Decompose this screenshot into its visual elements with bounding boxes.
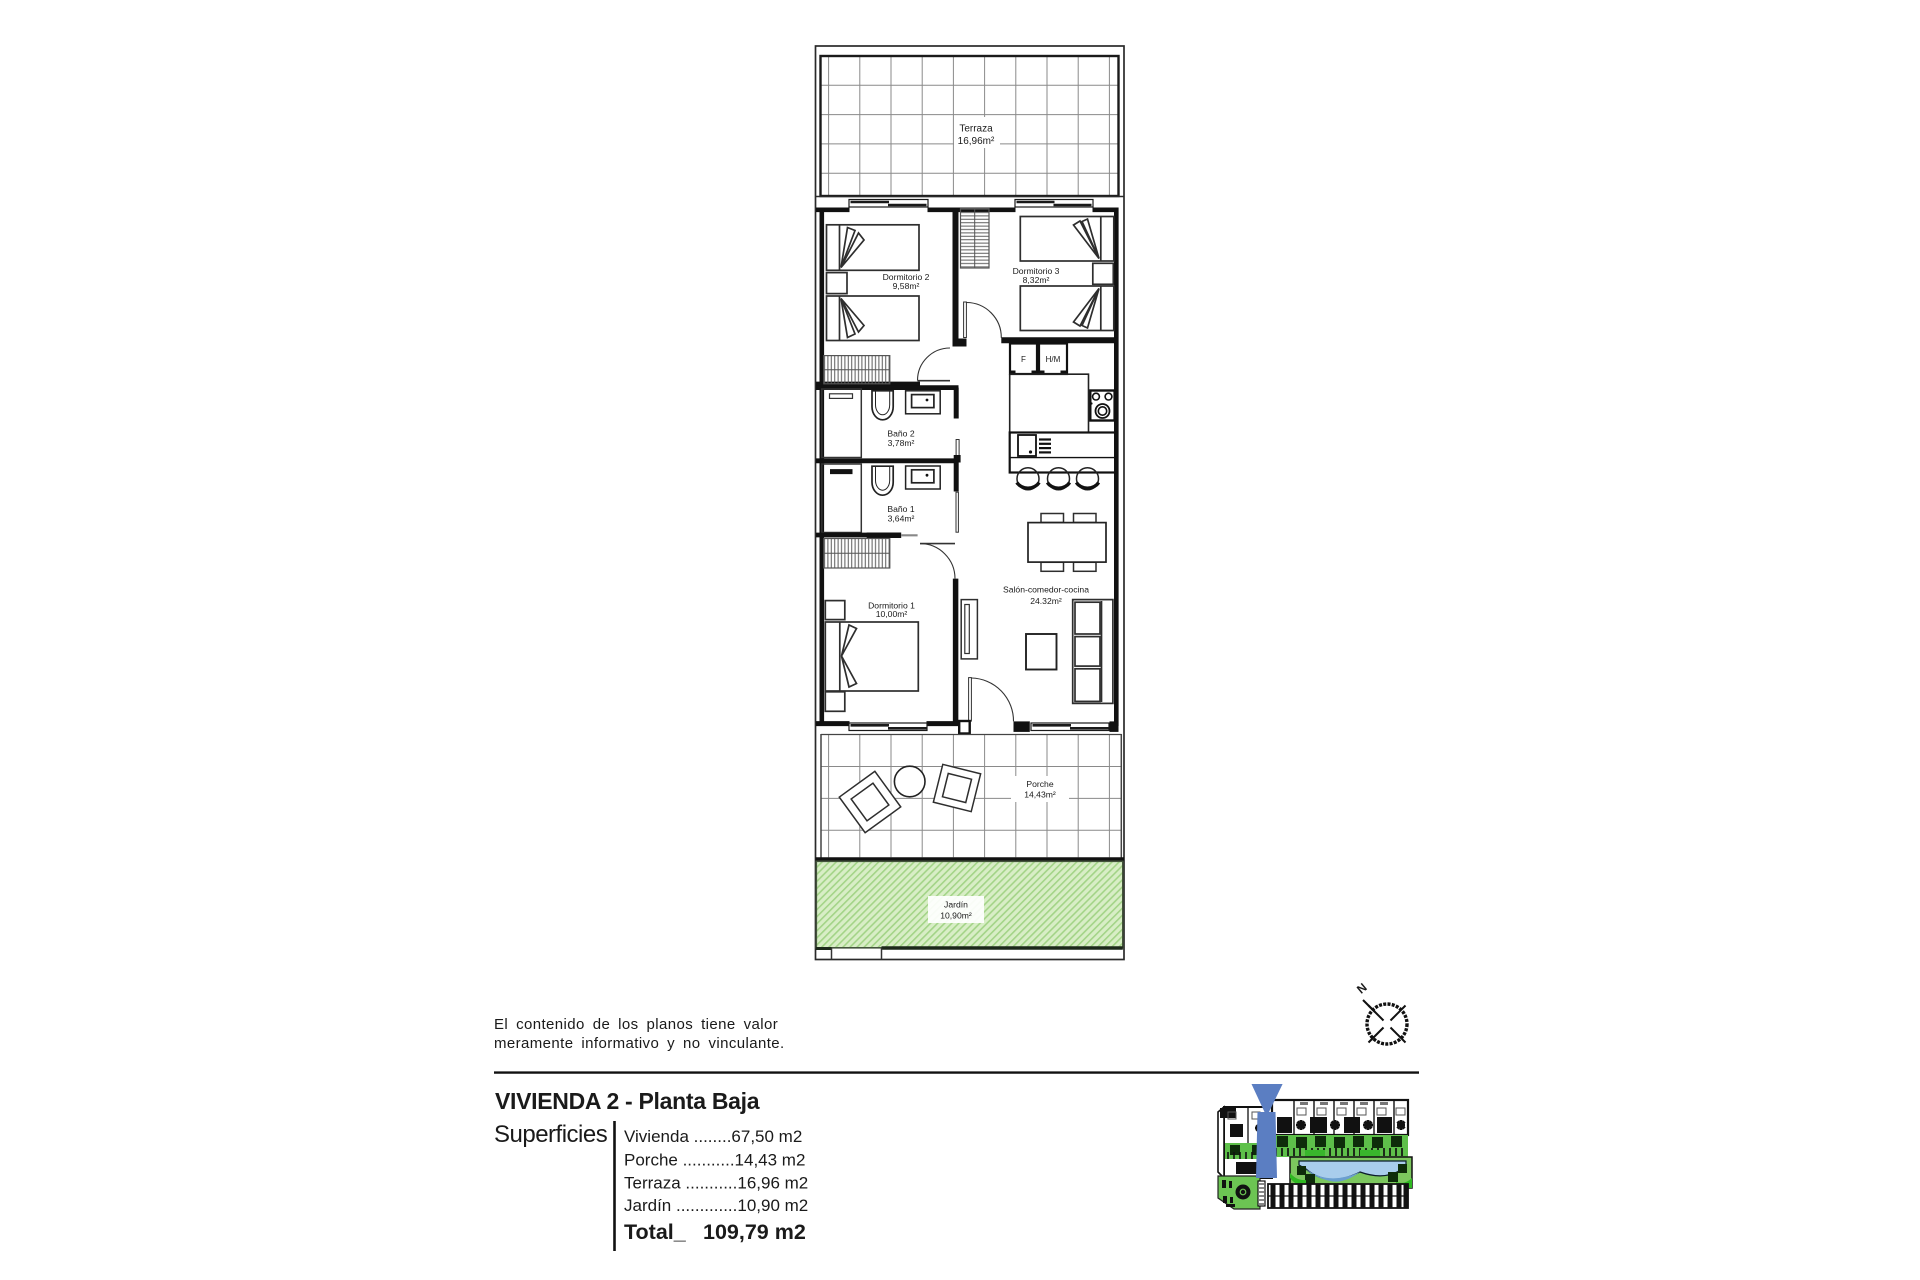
svg-text:3,64m²: 3,64m² [888, 513, 915, 523]
svg-text:10,90m²: 10,90m² [940, 911, 972, 921]
svg-text:meramente informativo y no vin: meramente informativo y no vinculante. [494, 1035, 785, 1052]
svg-text:Vivienda ........67,50 m2: Vivienda ........67,50 m2 [624, 1127, 802, 1146]
svg-text:8,32m²: 8,32m² [1023, 275, 1050, 285]
svg-text:Terraza ...........16,96 m2: Terraza ...........16,96 m2 [624, 1174, 808, 1193]
svg-text:El contenido de los planos tie: El contenido de los planos tiene valor [494, 1016, 778, 1033]
svg-text:3,78m²: 3,78m² [888, 438, 915, 448]
svg-text:24.32m²: 24.32m² [1030, 596, 1062, 606]
svg-text:Jardín: Jardín [944, 900, 968, 910]
svg-text:Terraza: Terraza [959, 124, 993, 135]
svg-text:Porche: Porche [1026, 779, 1053, 789]
svg-text:Porche ...........14,43 m2: Porche ...........14,43 m2 [624, 1151, 805, 1170]
svg-text:16,96m²: 16,96m² [958, 136, 995, 147]
svg-text:Superficies: Superficies [494, 1121, 608, 1148]
svg-text:Jardín .............10,90 m2: Jardín .............10,90 m2 [624, 1196, 808, 1215]
svg-text:9,58m²: 9,58m² [893, 281, 920, 291]
svg-text:14,43m²: 14,43m² [1024, 790, 1056, 800]
svg-text:10,00m²: 10,00m² [876, 609, 908, 619]
svg-text:Total_: Total_ [624, 1220, 687, 1244]
svg-text:H/M: H/M [1046, 355, 1061, 364]
svg-text:Salón-comedor-cocina: Salón-comedor-cocina [1003, 585, 1089, 595]
svg-text:VIVIENDA 2 - Planta Baja: VIVIENDA 2 - Planta Baja [495, 1088, 760, 1114]
svg-text:109,79 m2: 109,79 m2 [703, 1220, 806, 1244]
svg-text:F: F [1021, 355, 1026, 364]
